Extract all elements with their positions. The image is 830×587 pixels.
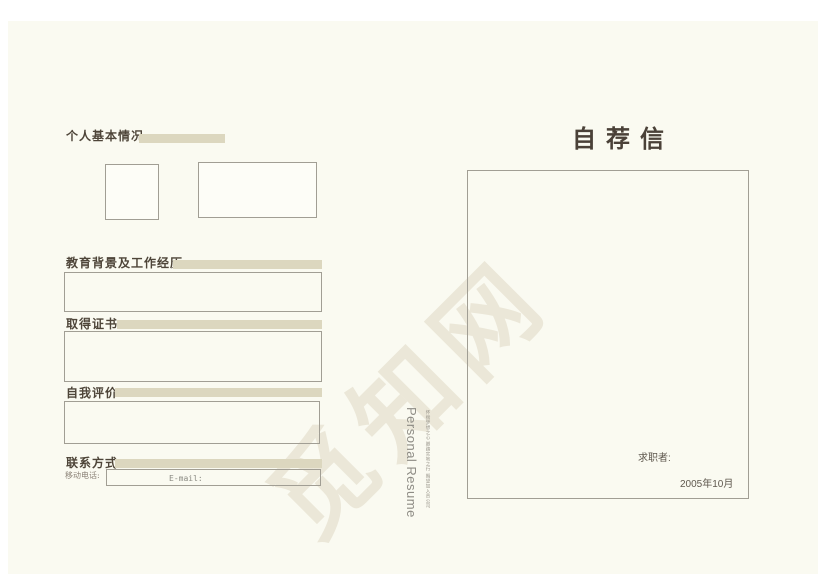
contact-input-box[interactable]: E-mail:: [106, 469, 321, 486]
accent-bar-basic-info: [139, 134, 225, 143]
accent-bar-education: [173, 260, 322, 269]
section-title-self-evaluation: 自我评价: [66, 384, 118, 401]
accent-bar-contact: [115, 459, 322, 468]
accent-bar-self-evaluation: [115, 388, 322, 397]
accent-bar-certificates: [117, 320, 322, 329]
spine-title-english: Personal Resume: [404, 407, 419, 499]
content-layer: 个人基本情况 教育背景及工作经历 取得证书 自我评价 联系方式 移动电话: E-…: [8, 21, 818, 574]
photo-box-large[interactable]: [198, 162, 317, 218]
section-title-certificates: 取得证书: [66, 315, 118, 332]
mobile-phone-label: 移动电话:: [65, 470, 100, 481]
certificates-box[interactable]: [64, 331, 322, 382]
spine-tagline: 怀揣梦想之心 脚踏实地之行 期望加入贵公司: [425, 410, 431, 496]
section-title-basic-info: 个人基本情况: [66, 127, 144, 144]
education-box[interactable]: [64, 272, 322, 312]
canvas: 觅知网 个人基本情况 教育背景及工作经历 取得证书 自我评价 联系方式 移动电话…: [0, 0, 830, 587]
applicant-label: 求职者:: [638, 449, 671, 464]
cover-letter-title: 自荐信: [528, 119, 718, 154]
cover-letter-box[interactable]: [467, 170, 749, 499]
date-label: 2005年10月: [680, 475, 733, 490]
email-label: E-mail:: [169, 474, 203, 483]
resume-template-page: 觅知网 个人基本情况 教育背景及工作经历 取得证书 自我评价 联系方式 移动电话…: [8, 21, 818, 574]
section-title-education: 教育背景及工作经历: [66, 254, 183, 271]
photo-box-small[interactable]: [105, 164, 159, 220]
self-evaluation-box[interactable]: [64, 401, 320, 444]
